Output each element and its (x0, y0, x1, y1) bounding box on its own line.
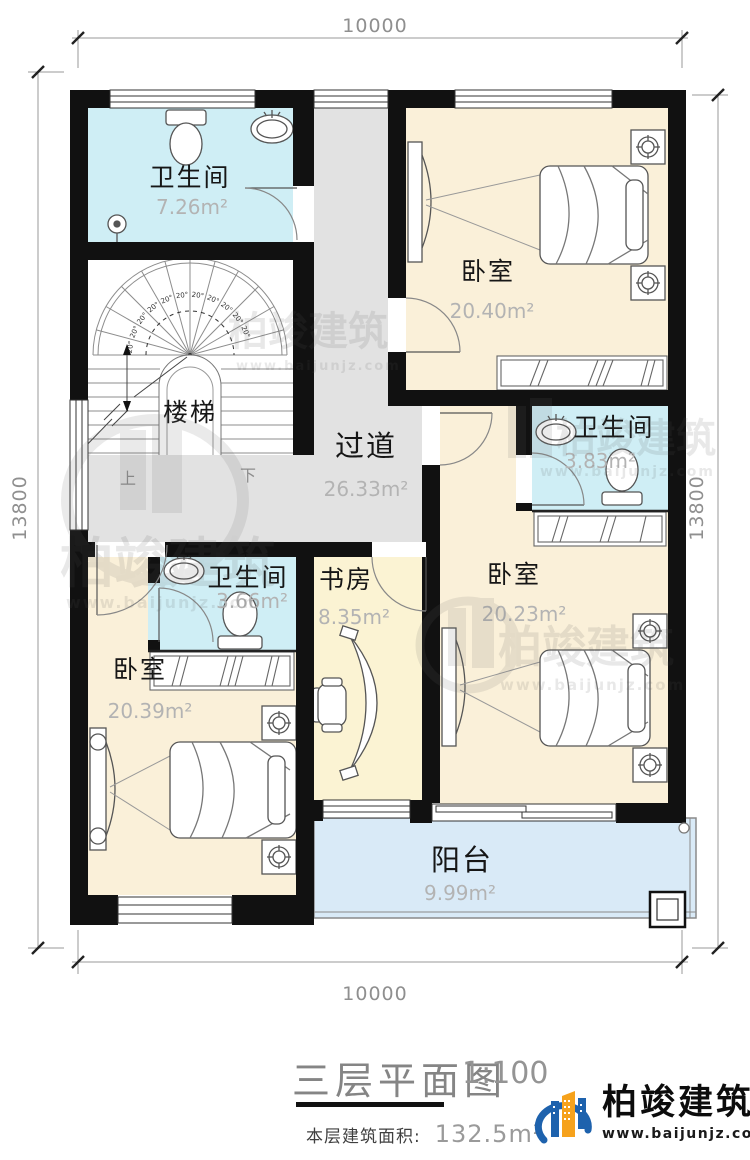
pillow (268, 756, 285, 824)
wall (232, 895, 314, 925)
watermark-url: www.baijunjz.com (66, 593, 261, 612)
watermark-url: www.baijunjz.com (500, 676, 685, 694)
nightstand (262, 706, 296, 740)
floor-area-line: 本层建筑面积: 132.5m² (306, 1120, 543, 1148)
area-study: 8.35m² (318, 605, 390, 629)
stair-step-angle-label: 20° (175, 291, 188, 301)
watermark-name: 柏竣建筑 (228, 309, 388, 355)
nightstand (262, 840, 296, 874)
window (110, 90, 255, 108)
brand-name: 柏竣建筑 (602, 1084, 750, 1123)
wardrobe (150, 652, 294, 690)
dim-bottom: 10000 (342, 983, 407, 1005)
brand-logo-icon (534, 1084, 596, 1154)
wardrobe (534, 512, 666, 546)
floor-area-label: 本层建筑面积: (306, 1122, 421, 1147)
label-bedroom-mid-right: 卧室 (487, 560, 541, 589)
brand-url: www.baijunjz.com (602, 1126, 750, 1142)
window (314, 90, 388, 108)
wall (70, 242, 314, 260)
dim-right: 13800 (686, 475, 708, 540)
watermark-name: 柏竣建筑 (498, 622, 674, 673)
nightstand (633, 748, 667, 782)
floor-area-value: 132.5m² (435, 1120, 544, 1148)
wall (410, 800, 432, 823)
room-balcony (314, 818, 696, 918)
wall (70, 895, 118, 925)
balcony-column (650, 892, 685, 927)
floor-plan-drawing: 20°20°20°20°20°20°20°20°20°20°20° (0, 0, 750, 1045)
window (118, 897, 232, 923)
title-underline (296, 1102, 444, 1107)
wall (516, 503, 532, 511)
window (323, 800, 410, 818)
wall (388, 108, 406, 298)
watermark-name: 柏竣建筑 (60, 532, 276, 595)
brand-text: 柏竣建筑 www.baijunjz.com (602, 1084, 750, 1142)
label-bedroom-bottom-left: 卧室 (113, 655, 167, 684)
pillow (628, 664, 645, 732)
wall (293, 260, 314, 455)
pillow (626, 180, 643, 250)
area-bedroom-bottom-left: 20.39m² (108, 699, 193, 723)
bed (540, 166, 648, 264)
nightstand (631, 266, 665, 300)
label-bath-top: 卫生间 (149, 163, 230, 192)
bed (170, 742, 296, 838)
balcony-drain-icon (679, 823, 689, 833)
label-balcony: 阳台 (431, 843, 493, 877)
stair-step-angle-label: 20° (191, 291, 204, 301)
brand-logo: 柏竣建筑 www.baijunjz.com (534, 1084, 750, 1154)
label-bedroom-top-right: 卧室 (461, 257, 515, 286)
watermark-url: www.baijunjz.com (236, 359, 401, 374)
label-corridor: 过道 (335, 429, 397, 463)
dim-left: 13800 (9, 475, 31, 540)
watermark: 柏竣建筑 www.baijunjz.com (228, 309, 401, 374)
watermark-url: www.baijunjz.com (540, 464, 715, 480)
nightstand (631, 130, 665, 164)
area-bedroom-top-right: 20.40m² (450, 299, 535, 323)
window (455, 90, 612, 108)
wall (148, 640, 160, 651)
sliding-door-balcony (432, 804, 616, 821)
wall (296, 545, 314, 925)
wall (616, 803, 668, 823)
wall (296, 800, 323, 821)
label-study: 书房 (319, 565, 373, 594)
area-balcony: 9.99m² (424, 881, 496, 905)
wardrobe (497, 356, 667, 390)
watermark-name: 柏竣建筑 (556, 416, 716, 462)
area-bath-top: 7.26m² (156, 195, 228, 219)
wall (422, 465, 440, 542)
floor-plan-page: 20°20°20°20°20°20°20°20°20°20°20° (0, 0, 750, 1160)
area-corridor: 26.33m² (324, 477, 409, 501)
dim-top: 10000 (342, 15, 407, 37)
